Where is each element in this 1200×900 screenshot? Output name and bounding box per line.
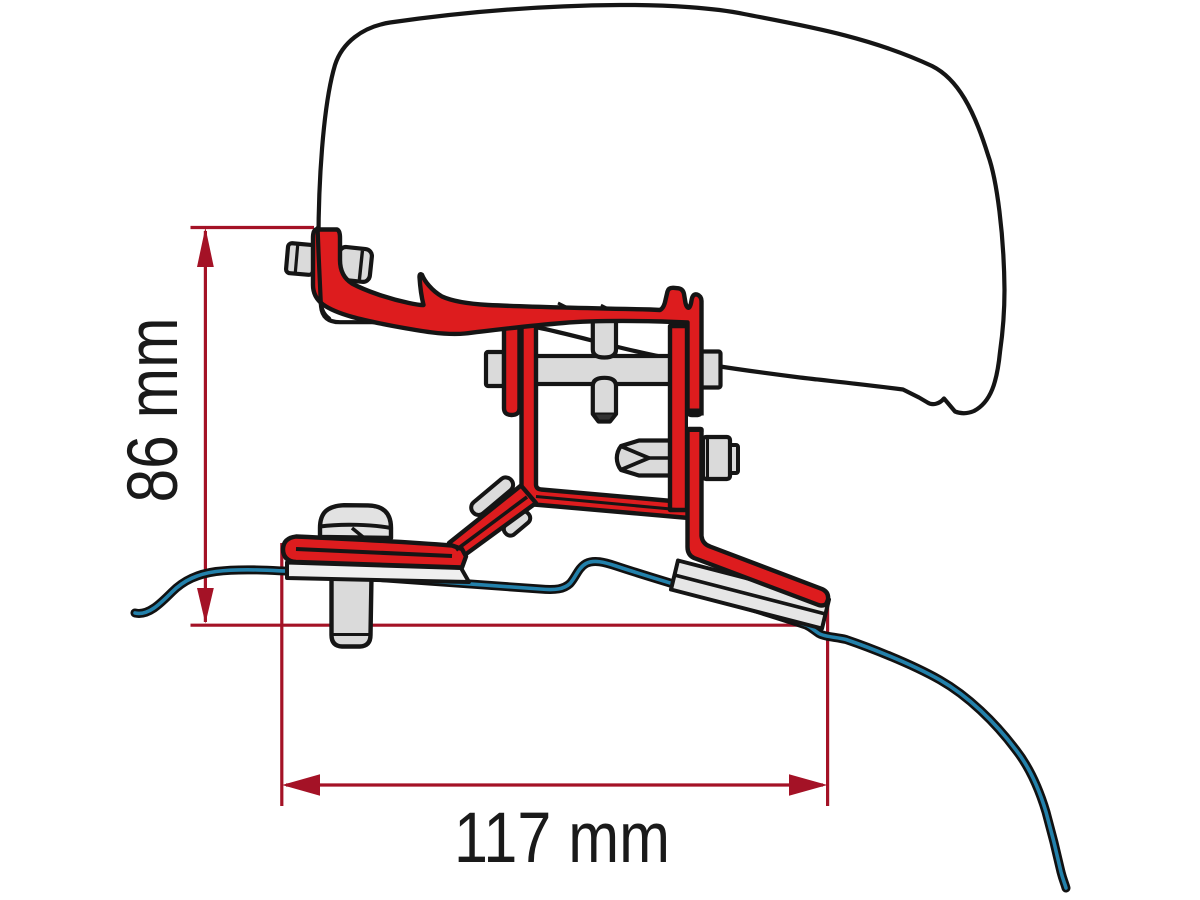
svg-text:86 mm: 86 mm (114, 318, 193, 503)
svg-text:117 mm: 117 mm (454, 799, 670, 878)
